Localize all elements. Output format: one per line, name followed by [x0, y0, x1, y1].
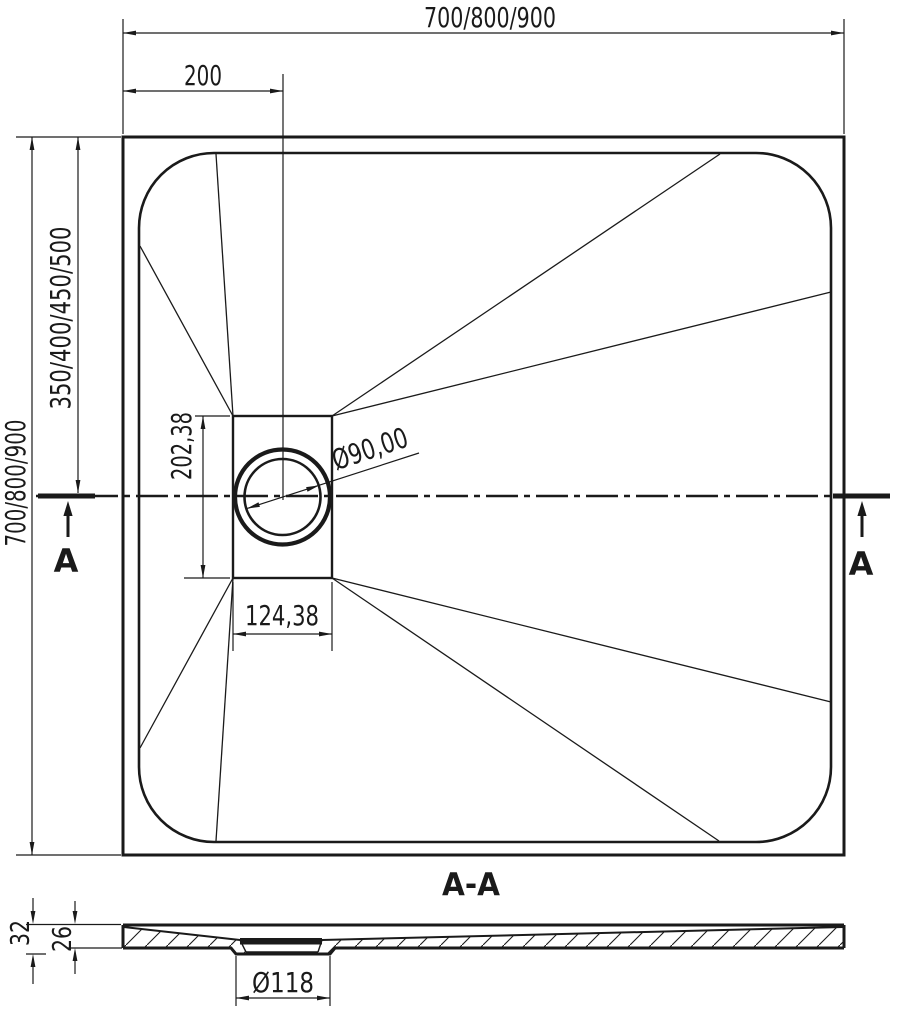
fold-line	[140, 578, 233, 748]
label-overall-height: 700/800/900	[0, 420, 32, 547]
fold-line	[216, 578, 233, 841]
plan-view	[16, 19, 890, 855]
section-view	[26, 898, 844, 1006]
technical-drawing: 700/800/900 200 700/800/900 350/400/450/…	[0, 0, 904, 1024]
tray-floor-edge	[139, 153, 831, 842]
section-bottom-edge	[123, 948, 844, 954]
tray-outer-edge	[123, 137, 844, 855]
section-title: A-A	[442, 867, 500, 903]
plan-view-labels: 700/800/900 200 700/800/900 350/400/450/…	[0, 1, 874, 632]
label-waste-diameter: Ø118	[252, 966, 314, 999]
fold-line	[216, 154, 233, 416]
fold-line	[332, 292, 831, 416]
cut-marker-left-label: A	[54, 542, 79, 580]
arrow-up-icon	[857, 501, 866, 516]
drawing-svg: 700/800/900 200 700/800/900 350/400/450/…	[0, 0, 904, 1024]
fold-line	[332, 578, 719, 841]
cut-arrow-right	[857, 501, 866, 537]
fold-line	[332, 578, 831, 702]
label-center-height: 350/400/450/500	[44, 227, 77, 410]
section-view-labels: A-A 32 26 Ø118	[6, 867, 500, 999]
label-drain-offset: 200	[184, 59, 222, 92]
fold-line	[140, 246, 233, 416]
label-drain-box-height: 202,38	[165, 412, 198, 480]
fold-line	[332, 154, 720, 416]
cut-marker-right-label: A	[849, 545, 874, 583]
cut-arrow-left	[63, 501, 72, 537]
label-drain-box-width: 124,38	[245, 599, 319, 632]
label-overall-width: 700/800/900	[424, 1, 556, 34]
label-body-height: 26	[48, 926, 78, 952]
dim-overall-width	[123, 19, 844, 134]
label-total-height: 32	[6, 920, 36, 946]
arrow-up-icon	[63, 501, 72, 516]
drain-cover-plate	[240, 938, 322, 945]
